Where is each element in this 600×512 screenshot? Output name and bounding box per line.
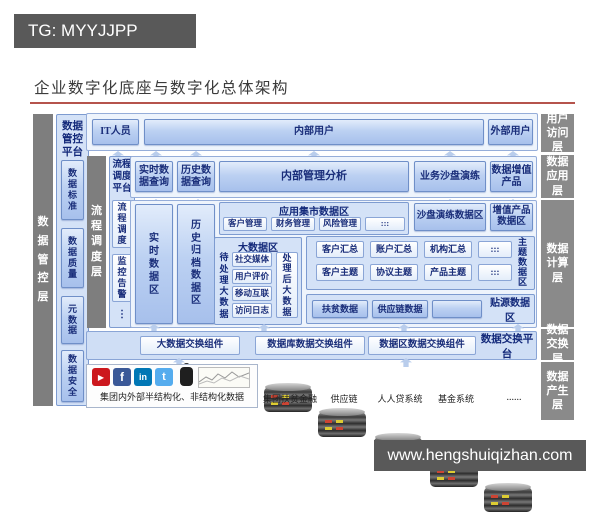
linkedin-icon: in xyxy=(134,368,152,386)
database-label-supplychain: 供应链 xyxy=(318,394,370,404)
database-label-p2p: 人人贷系统 xyxy=(372,394,428,404)
exchange-component-database: 数据库数据交换组件 xyxy=(255,336,365,355)
business-sandbox-box: 业务沙盘演练 xyxy=(414,161,486,192)
sandbox-data-area-header: 沙盘演练数据区 xyxy=(414,203,486,231)
unstructured-data-caption: 集团内外部半结构化、非结构化数据 xyxy=(88,392,256,402)
source-box-supplychain-data: 供应链数据 xyxy=(372,300,428,318)
governance-item-data-standard: 数据标准 xyxy=(61,160,84,220)
bigdata-item-mobile: 移动互联 xyxy=(232,286,272,301)
layer-label-data-exchange: 数据交换层 xyxy=(541,329,574,360)
source-box-poverty-data: 扶贫数据 xyxy=(312,300,368,318)
title-underline xyxy=(30,102,575,104)
governance-item-data-quality: 数据质量 xyxy=(61,228,84,288)
app-mart-title: 应用集市数据区 xyxy=(219,203,409,218)
theme-data-area-label: 主题数据区 xyxy=(514,239,531,287)
governance-item-data-security: 数据安全 xyxy=(61,350,84,402)
app-mart-item-more: ::: xyxy=(365,217,405,231)
theme-box-account-summary: 账户汇总 xyxy=(370,241,418,258)
layer-label-data-produce: 数据产生层 xyxy=(541,362,574,420)
exchange-component-bigdata: 大数据交换组件 xyxy=(140,336,240,355)
scheduling-item-monitor: 监控告警 xyxy=(112,254,132,302)
value-product-box: 数据增值产品 xyxy=(490,161,533,192)
page-title: 企业数字化底座与数字化总体架构 xyxy=(34,76,454,98)
exchange-platform-label: 数据交换平台 xyxy=(479,336,535,355)
theme-box-customer-topic: 客户主题 xyxy=(316,264,364,281)
scheduling-item-process: 流程调度 xyxy=(112,200,132,248)
database-more-label: ...... xyxy=(496,392,532,404)
archive-data-area: 历史归档数据区 xyxy=(177,204,215,324)
app-mart-item-finance: 财务管理 xyxy=(271,217,315,231)
chart-image xyxy=(198,367,250,388)
database-icon xyxy=(484,487,532,512)
database-icon xyxy=(318,412,366,437)
realtime-data-area: 实时数据区 xyxy=(135,204,173,324)
bigdata-item-social: 社交媒体 xyxy=(232,252,272,267)
theme-box-more-2: ::: xyxy=(478,264,512,281)
theme-box-agreement-topic: 协议主题 xyxy=(370,264,418,281)
youtube-icon: ▶ xyxy=(92,368,110,386)
bigdata-processed-box: 处理后大数据 xyxy=(276,252,298,318)
scheduling-item-more: ⋮ xyxy=(112,306,132,322)
governance-platform-title: 数据管控平台 xyxy=(58,120,87,159)
database-label-fund: 基金系统 xyxy=(428,394,484,404)
app-mart-item-risk: 风险管理 xyxy=(319,217,361,231)
twitter-icon: t xyxy=(155,368,173,386)
it-user-box: IT人员 xyxy=(92,119,139,145)
tg-watermark: TG: MYYJJPP xyxy=(14,14,196,48)
bigdata-pending-label: 待处理大数据 xyxy=(217,252,231,320)
smartwatch-image xyxy=(180,367,193,386)
theme-box-more-1: ::: xyxy=(478,241,512,258)
governance-layer-label: 数据管控层 xyxy=(37,213,49,306)
scheduling-layer-label: 流程调度层 xyxy=(91,204,103,281)
site-watermark: www.hengshuiqizhan.com xyxy=(374,440,586,471)
governance-item-metadata: 元数据 xyxy=(61,296,84,344)
theme-box-org-summary: 机构汇总 xyxy=(424,241,472,258)
layer-label-data-application: 数据应用层 xyxy=(541,155,574,198)
app-mart-item-customer: 客户管理 xyxy=(223,217,267,231)
bigdata-item-review: 用户评价 xyxy=(232,269,272,284)
value-product-data-area-header: 增值产品数据区 xyxy=(490,203,533,231)
realtime-query-box: 实时数据查询 xyxy=(135,161,173,192)
source-data-area-label: 贴源数据区 xyxy=(486,300,534,318)
source-box-blank xyxy=(432,300,482,318)
internal-user-box: 内部用户 xyxy=(144,119,484,145)
layer-label-user-access: 用户访问层 xyxy=(541,114,574,152)
external-user-box: 外部用户 xyxy=(488,119,533,145)
facebook-icon: f xyxy=(113,368,131,386)
history-query-box: 历史数据查询 xyxy=(177,161,215,192)
governance-layer-bar: 数据管控层 xyxy=(33,114,53,406)
scheduling-layer-bar: 流程调度层 xyxy=(87,156,106,328)
theme-box-product-topic: 产品主题 xyxy=(424,264,472,281)
layer-label-data-compute: 数据计算层 xyxy=(541,200,574,327)
bigdata-item-log: 访问日志 xyxy=(232,303,272,318)
theme-box-customer-summary: 客户汇总 xyxy=(316,241,364,258)
internal-analysis-box: 内部管理分析 xyxy=(219,161,409,192)
exchange-component-dataarea: 数据区数据交换组件 xyxy=(368,336,476,355)
database-label-group-finance: 集团扶贫金融 xyxy=(262,394,318,404)
